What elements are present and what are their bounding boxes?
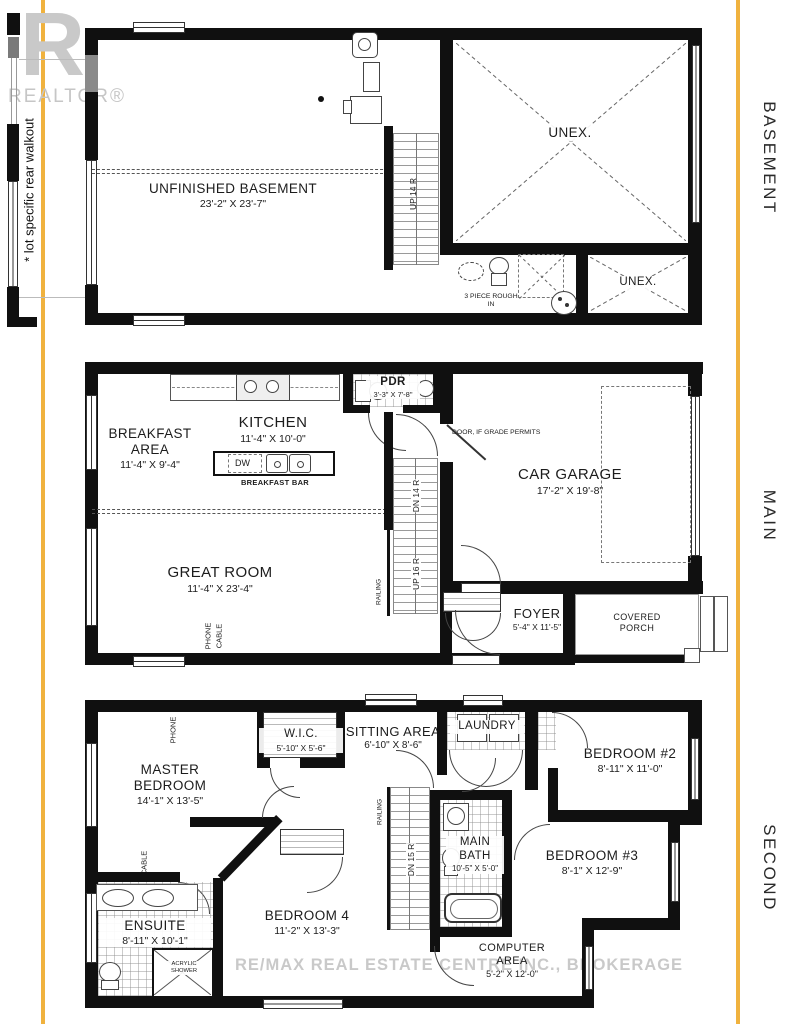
patio-door xyxy=(86,528,97,626)
room-dims: 5'-10" X 5'-6" xyxy=(259,743,343,753)
room-dims: 23'-2" X 23'-7" xyxy=(133,198,333,210)
water-heater-dial-icon xyxy=(358,38,371,51)
well-line xyxy=(11,58,12,124)
room-label-bedroom2: BEDROOM #2 8'-11" X 11'-0" xyxy=(568,746,692,775)
room-name: LAUNDRY xyxy=(450,720,524,734)
window xyxy=(133,315,185,326)
railing-label: RAILING xyxy=(376,579,383,605)
cable-note: CABLE xyxy=(215,624,224,649)
furnace-vent-icon xyxy=(343,100,352,114)
toilet-tank-icon xyxy=(101,980,119,990)
room-dims: 5'-4" X 11'-5" xyxy=(487,622,587,632)
room-name: UNEX. xyxy=(530,125,610,141)
door-arc xyxy=(396,750,434,788)
room-label-pdr: PDR 3'-3" X 7'-8" xyxy=(366,376,420,399)
window xyxy=(86,743,97,827)
wall xyxy=(525,700,538,790)
room-name: BEDROOM #2 xyxy=(568,746,692,762)
room-dims: 8'-11" X 10'-1" xyxy=(99,935,211,947)
floor-drain-icon xyxy=(551,291,577,315)
well-line xyxy=(19,297,85,298)
wall xyxy=(85,92,98,160)
furnace-icon xyxy=(350,96,382,124)
faucet-dot xyxy=(297,461,304,468)
floor-label-basement: BASEMENT xyxy=(759,101,779,215)
room-label-unex-small: UNEX. xyxy=(598,276,678,290)
bathtub-inner xyxy=(450,899,498,919)
door-arc xyxy=(461,545,501,585)
realtor-r-icon: R xyxy=(20,0,85,97)
room-dims: 8'-1" X 12'-9" xyxy=(530,865,654,877)
room-dims: 11'-4" X 9'-4" xyxy=(95,459,205,471)
reference-line xyxy=(92,509,386,514)
wall xyxy=(7,124,19,181)
wall xyxy=(403,405,443,413)
room-name: UNFINISHED BASEMENT xyxy=(133,181,333,197)
room-label-unex-large: UNEX. xyxy=(530,125,610,141)
wall xyxy=(257,758,270,768)
window xyxy=(133,22,185,33)
hvac-icon xyxy=(363,62,380,92)
room-name: UNEX. xyxy=(598,276,678,290)
room-label-laundry: LAUNDRY xyxy=(450,720,524,734)
label-text: BREAKFAST BAR xyxy=(241,478,309,487)
realtor-logo-text: REALTOR® xyxy=(8,86,126,108)
room-dims: 17'-2" X 19'-8" xyxy=(495,485,645,497)
label-text: DOOR, IF GRADE PERMITS xyxy=(452,429,540,436)
dishwasher-icon: DW xyxy=(228,454,262,473)
stairs-dn-label: DN 14 R xyxy=(411,480,421,513)
wall xyxy=(85,872,180,882)
room-label-computer: COMPUTER AREA 5'-2" X 12'-0" xyxy=(472,942,552,980)
unex-x-marking xyxy=(456,43,686,241)
room-label-foyer: FOYER 5'-4" X 11'-5" xyxy=(487,606,587,632)
stairs-dn-label: DN 15 R xyxy=(406,844,416,877)
wall xyxy=(575,655,700,663)
window xyxy=(691,738,699,800)
room-label-garage: CAR GARAGE 17'-2" X 19'-8" xyxy=(495,466,645,497)
room-label-breakfast: BREAKFAST AREA 11'-4" X 9'-4" xyxy=(95,426,205,471)
railing-label: RAILING xyxy=(377,799,384,825)
accent-line-left xyxy=(41,0,45,1024)
wall xyxy=(300,758,345,768)
wall xyxy=(440,362,453,424)
wall xyxy=(213,878,223,1008)
room-dims: 11'-2" X 13'-3" xyxy=(245,925,369,937)
sink-icon xyxy=(447,807,465,825)
wall xyxy=(85,362,703,374)
room-name: FOYER xyxy=(487,606,587,621)
room-dims: 3'-3" X 7'-8" xyxy=(366,391,420,400)
room-dims: 11'-4" X 10'-0" xyxy=(213,433,333,445)
room-label-bedroom3: BEDROOM #3 8'-1" X 12'-9" xyxy=(530,848,654,877)
label-text: ACRYLIC SHOWER xyxy=(171,961,197,974)
floor-drain-dot xyxy=(318,96,324,102)
door-note: DOOR, IF GRADE PERMITS xyxy=(452,429,544,437)
window xyxy=(585,946,593,990)
burner-icon xyxy=(244,380,257,393)
breakfast-bar-label: BREAKFAST BAR xyxy=(215,479,335,488)
room-name: BEDROOM #3 xyxy=(530,848,654,864)
room-label-unfinished-basement: UNFINISHED BASEMENT 23'-2" X 23'-7" xyxy=(133,181,333,210)
sink-icon xyxy=(142,889,174,907)
window xyxy=(692,45,700,223)
window xyxy=(263,999,343,1009)
floor-label-main: MAIN xyxy=(759,490,779,543)
room-name: CAR GARAGE xyxy=(495,466,645,484)
walkout-door xyxy=(85,55,98,92)
stairs-up-label: UP 16 R xyxy=(411,558,421,590)
porch-step xyxy=(684,648,700,663)
room-name: GREAT ROOM xyxy=(145,564,295,582)
wall xyxy=(548,810,700,822)
stairs-up-label: UP 14 R xyxy=(408,178,418,210)
wall xyxy=(437,700,447,775)
room-label-sitting: SITTING AREA 6'-10" X 8'-6" xyxy=(336,724,450,752)
sink-icon xyxy=(102,889,134,907)
wall xyxy=(430,790,440,937)
wall xyxy=(440,28,453,255)
railing xyxy=(387,530,390,616)
wall xyxy=(343,405,370,413)
room-label-ensuite: ENSUITE 8'-11" X 10'-1" xyxy=(99,918,211,947)
well-line xyxy=(19,59,85,60)
bathtub-icon xyxy=(444,893,502,923)
reference-line xyxy=(92,169,388,174)
wall xyxy=(7,317,37,327)
sink-icon xyxy=(458,262,484,281)
room-name: BREAKFAST AREA xyxy=(95,426,205,458)
wall xyxy=(85,28,98,55)
room-name: PDR xyxy=(366,376,420,390)
room-dims: 5'-2" X 12'-0" xyxy=(472,969,552,980)
wall xyxy=(384,412,393,530)
wall xyxy=(576,243,588,325)
floor-plan-page: R REALTOR® * lot specific rear walkout B… xyxy=(0,0,791,1024)
burner-icon xyxy=(266,380,279,393)
realtor-logo: R REALTOR® xyxy=(6,2,116,112)
room-name: MASTER BEDROOM xyxy=(105,762,235,794)
front-door xyxy=(452,655,500,665)
room-dims: 11'-4" X 23'-4" xyxy=(145,583,295,595)
door-arc xyxy=(552,712,588,748)
side-note: * lot specific rear walkout xyxy=(22,118,37,262)
room-dims: 6'-10" X 8'-6" xyxy=(336,740,450,752)
room-dims: 14'-1" X 13'-5" xyxy=(105,795,235,807)
phone-note: PHONE xyxy=(169,717,178,744)
wall xyxy=(440,462,453,583)
room-label-main-bath: MAIN BATH 10'-5" X 5'-0" xyxy=(446,836,504,874)
window xyxy=(365,694,417,706)
room-label-great-room: GREAT ROOM 11'-4" X 23'-4" xyxy=(145,564,295,595)
porch-step xyxy=(700,596,714,652)
garage-door xyxy=(691,396,700,556)
room-name: MAIN BATH xyxy=(446,836,504,863)
room-name: 3 PIECE ROUGH IN xyxy=(464,293,517,308)
room-label-bedroom4: BEDROOM 4 11'-2" X 13'-3" xyxy=(245,908,369,937)
toilet-tank-icon xyxy=(491,273,507,286)
well-line xyxy=(16,58,17,124)
room-name: COVERED PORCH xyxy=(598,612,676,633)
door-arc xyxy=(262,786,294,818)
wall xyxy=(7,13,20,35)
porch-step xyxy=(714,596,728,652)
room-label-kitchen: KITCHEN 11'-4" X 10'-0" xyxy=(213,414,333,445)
room-name: SITTING AREA xyxy=(336,724,450,739)
walkout-stair xyxy=(8,37,19,58)
room-dims: 10'-5" X 5'-0" xyxy=(446,864,504,873)
acrylic-shower-label: ACRYLIC SHOWER xyxy=(163,961,205,975)
wall xyxy=(582,918,678,930)
door-arc xyxy=(307,857,343,893)
room-dims: 8'-11" X 11'-0" xyxy=(568,763,692,775)
accent-line-right xyxy=(736,0,740,1024)
door-arc xyxy=(434,946,474,986)
toilet-icon xyxy=(99,962,121,982)
faucet-dot xyxy=(274,461,281,468)
window xyxy=(133,656,185,667)
dw-label: DW xyxy=(235,458,250,468)
door-arc xyxy=(462,758,496,792)
room-name: ENSUITE xyxy=(99,918,211,934)
rough-in-label: 3 PIECE ROUGH IN xyxy=(462,293,520,310)
wall xyxy=(384,126,393,270)
window xyxy=(671,842,679,902)
wall xyxy=(190,817,277,827)
wall xyxy=(430,927,512,937)
door-arc xyxy=(396,414,438,456)
room-name: BEDROOM 4 xyxy=(245,908,369,924)
bedroom4-closet xyxy=(280,829,344,855)
window xyxy=(463,695,503,706)
phone-note: PHONE xyxy=(204,623,213,650)
room-name: COMPUTER AREA xyxy=(472,942,552,968)
drain-dot xyxy=(558,297,562,301)
railing xyxy=(387,787,390,930)
window xyxy=(86,160,97,285)
room-label-porch: COVERED PORCH xyxy=(598,612,676,633)
room-name: W.I.C. xyxy=(259,728,343,742)
room-label-master: MASTER BEDROOM 14'-1" X 13'-5" xyxy=(105,762,235,807)
room-name: KITCHEN xyxy=(213,414,333,432)
floor-label-second: SECOND xyxy=(759,824,779,912)
wall xyxy=(440,243,702,255)
room-label-wic: W.I.C. 5'-10" X 5'-6" xyxy=(259,728,343,753)
window xyxy=(8,181,18,287)
wall xyxy=(430,790,512,800)
drain-dot xyxy=(565,303,569,307)
